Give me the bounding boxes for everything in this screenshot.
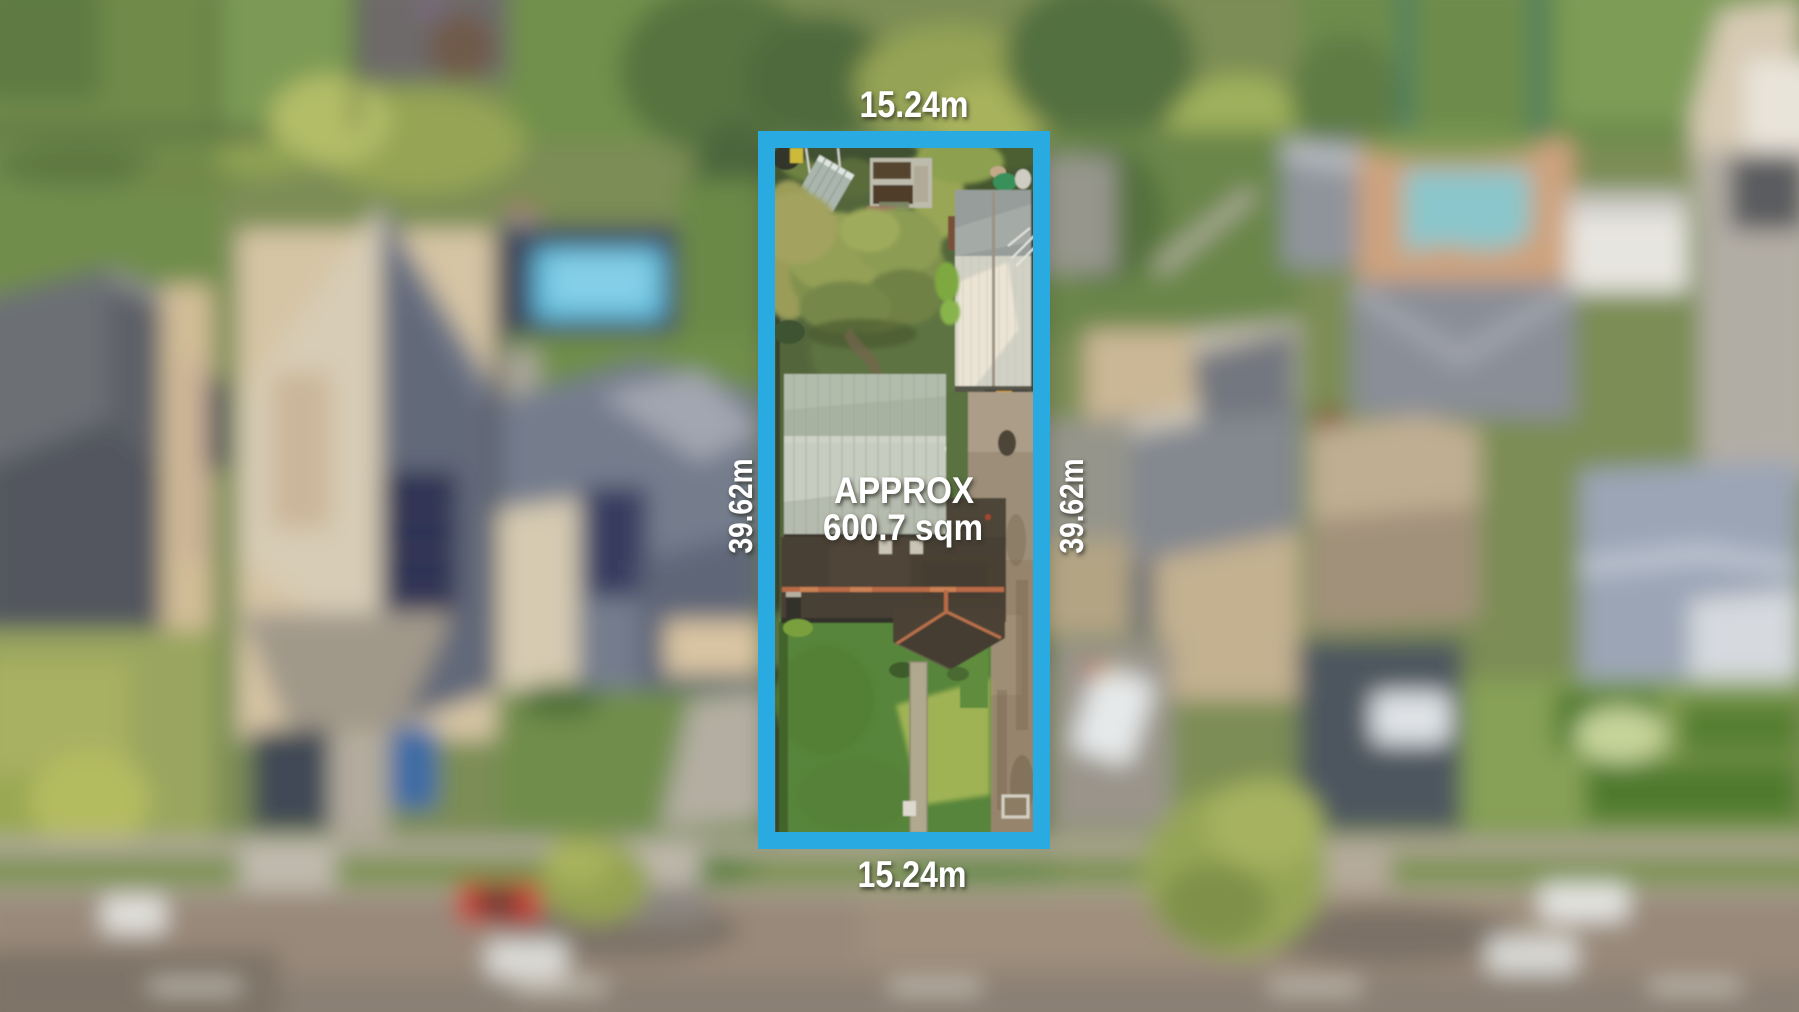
svg-text:39.62m: 39.62m — [722, 459, 759, 554]
svg-text:39.62m: 39.62m — [1053, 459, 1090, 554]
svg-text:15.24m: 15.24m — [858, 854, 967, 895]
svg-text:600.7 sqm: 600.7 sqm — [823, 507, 983, 548]
svg-text:15.24m: 15.24m — [860, 84, 969, 125]
svg-text:APPROX: APPROX — [834, 470, 974, 511]
